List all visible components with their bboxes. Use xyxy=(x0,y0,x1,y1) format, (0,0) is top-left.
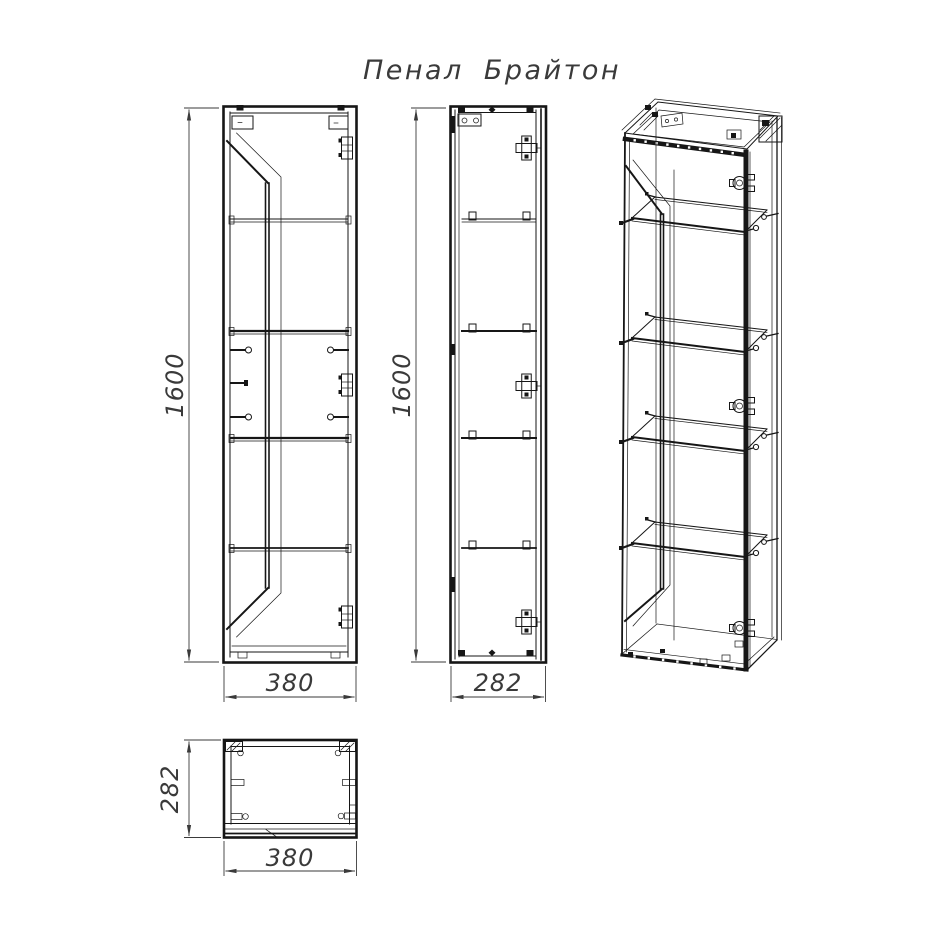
front-height-dimension: 1600 xyxy=(161,108,219,662)
side-hanging-bracket xyxy=(458,114,481,126)
front-shelf-2 xyxy=(229,328,351,336)
top-view xyxy=(224,740,357,838)
front-width-label: 380 xyxy=(266,669,315,697)
side-shelf-4 xyxy=(462,541,536,549)
iso-hinge-middle xyxy=(730,398,755,415)
side-hinge-plate-top xyxy=(516,136,541,160)
iso-glass-door-mark xyxy=(625,160,674,640)
side-hinge-plate-middle xyxy=(516,374,541,398)
iso-view xyxy=(619,99,782,670)
front-shelf-pins xyxy=(231,347,348,420)
side-hinge-plate-bottom xyxy=(516,610,541,634)
drawing-title: Пенал Брайтон xyxy=(363,55,621,86)
front-view xyxy=(224,105,357,663)
front-shelf-1 xyxy=(229,216,351,224)
side-depth-label: 282 xyxy=(474,669,523,697)
side-view xyxy=(451,107,547,663)
side-height-label: 1600 xyxy=(388,352,416,417)
front-hanging-bracket-right xyxy=(329,116,348,129)
side-shelf-2 xyxy=(462,324,536,332)
top-width-dimension: 380 xyxy=(224,841,357,876)
top-depth-label: 282 xyxy=(156,765,184,814)
top-depth-dimension: 282 xyxy=(156,740,221,838)
front-height-label: 1600 xyxy=(161,352,189,417)
top-bracket-right xyxy=(335,742,355,756)
front-width-dimension: 380 xyxy=(224,666,356,702)
iso-glass-shelves xyxy=(619,192,778,560)
top-shelf-pins xyxy=(231,780,357,820)
side-depth-dimension: 282 xyxy=(451,666,546,702)
top-bracket-left xyxy=(226,742,244,756)
top-view-door xyxy=(224,824,357,837)
technical-drawing-canvas: Пенал Брайтон xyxy=(0,0,950,950)
iso-top-bracket-left xyxy=(640,105,683,130)
front-hanging-bracket-left xyxy=(232,116,253,129)
drawing-sheet: Пенал Брайтон xyxy=(0,0,950,950)
top-width-label: 380 xyxy=(266,844,315,872)
side-shelf-1 xyxy=(462,212,536,222)
front-hinge-middle xyxy=(339,374,353,396)
front-hinge-top xyxy=(339,137,353,159)
front-hinge-bottom xyxy=(339,606,353,628)
side-height-dimension: 1600 xyxy=(388,108,446,662)
side-shelf-3 xyxy=(462,431,536,439)
front-glass-door-mark xyxy=(227,133,281,637)
iso-hinge-top xyxy=(730,175,755,192)
front-shelf-3 xyxy=(229,435,351,443)
front-shelf-4 xyxy=(229,545,351,553)
